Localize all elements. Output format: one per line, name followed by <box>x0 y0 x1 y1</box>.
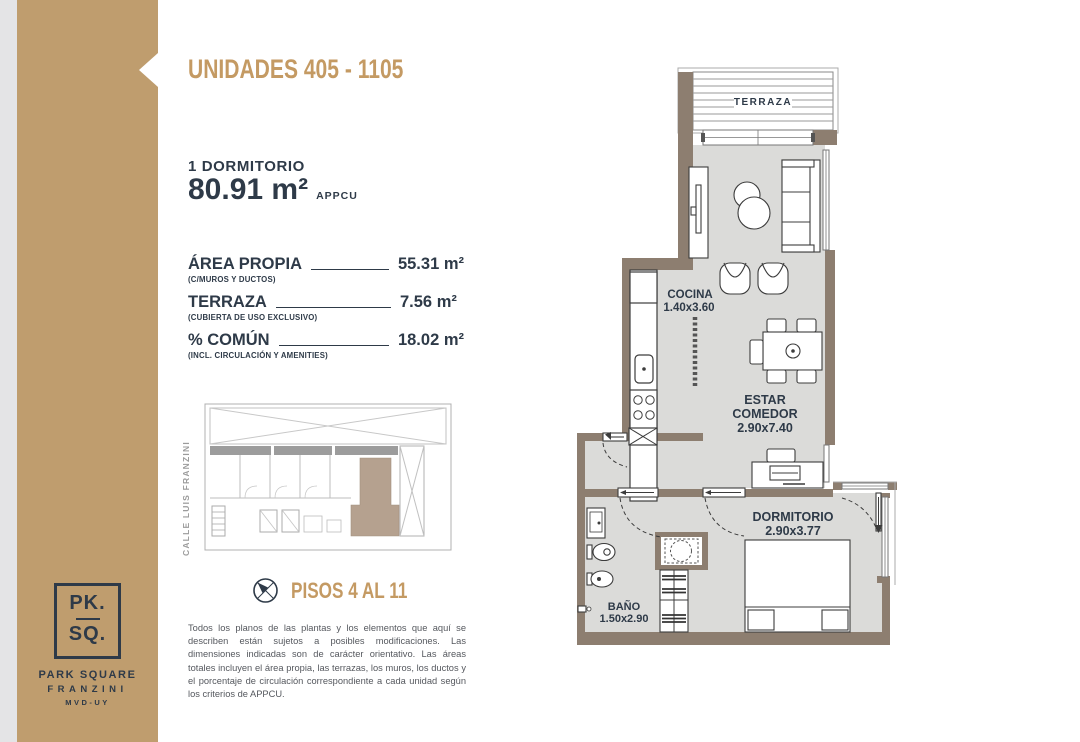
desk-chair <box>767 449 795 462</box>
area-standard: APPCU <box>316 190 358 202</box>
area-value: 7.56 m² <box>400 293 464 312</box>
logo-rule <box>76 618 100 620</box>
room-label-cocina: COCINA <box>667 289 712 301</box>
terrace: TERRAZA <box>678 68 838 133</box>
tv <box>696 185 701 233</box>
room-label-estar-2: COMEDOR <box>732 407 797 421</box>
dining-chair <box>750 340 763 364</box>
room-dims-estar: 2.90x7.40 <box>737 421 793 435</box>
brand-logo: PK. SQ. PARK SQUARE FRANZINI MVD-UY <box>17 583 158 707</box>
total-area: 80.91 m² APPCU <box>188 173 358 207</box>
logo-monogram-bottom: SQ. <box>57 621 118 648</box>
logo-box: PK. SQ. <box>54 583 121 659</box>
toilet-tank <box>587 545 592 559</box>
dining-chair <box>797 319 816 332</box>
compass-icon <box>252 577 279 604</box>
total-area-value: 80.91 m² <box>188 173 308 207</box>
brand-name: PARK SQUARE <box>17 669 158 681</box>
room-dims-cocina: 1.40x3.60 <box>663 302 714 314</box>
sidebar-arrow-notch <box>139 53 158 87</box>
coffee-table <box>738 197 770 229</box>
area-breakdown: ÁREA PROPIA 55.31 m² (C/MUROS Y DUCTOS) … <box>188 255 464 369</box>
nightstand <box>822 610 848 630</box>
disclaimer-text: Todos los planos de las plantas y los el… <box>188 622 466 701</box>
area-note: (INCL. CIRCULACIÓN Y AMENITIES) <box>188 351 464 360</box>
page-edge-strip <box>0 0 17 742</box>
site-plan <box>203 398 455 561</box>
room-dims-bano: 1.50x2.90 <box>600 613 649 625</box>
street-label: CALLE LUIS FRANZINI <box>181 398 191 556</box>
armchair <box>758 263 788 294</box>
bidet <box>591 571 613 587</box>
area-note: (CUBIERTA DE USO EXCLUSIVO) <box>188 313 464 322</box>
dining-chair <box>767 319 786 332</box>
area-note: (C/MUROS Y DUCTOS) <box>188 275 464 284</box>
area-row-terraza: TERRAZA 7.56 m² (CUBIERTA DE USO EXCLUSI… <box>188 293 464 322</box>
area-row-propia: ÁREA PROPIA 55.31 m² (C/MUROS Y DUCTOS) <box>188 255 464 284</box>
area-label: TERRAZA <box>188 293 267 312</box>
area-label: ÁREA PROPIA <box>188 255 302 274</box>
room-label-bano: BAÑO <box>608 600 641 613</box>
dining-chair <box>767 370 786 383</box>
leader-line <box>279 345 389 346</box>
room-label-estar-1: ESTAR <box>744 393 785 407</box>
room-dims-dormitorio: 2.90x3.77 <box>765 524 821 538</box>
dining-chair <box>797 370 816 383</box>
armchair <box>720 263 750 294</box>
area-row-comun: % COMÚN 18.02 m² (INCL. CIRCULACIÓN Y AM… <box>188 331 464 360</box>
floors-label: PISOS 4 AL 11 <box>291 578 440 604</box>
leader-line <box>276 307 391 308</box>
page-title: UNIDADES 405 - 1105 <box>188 54 464 85</box>
brochure-page: PK. SQ. PARK SQUARE FRANZINI MVD-UY UNID… <box>0 0 1080 742</box>
brand-sidebar: PK. SQ. PARK SQUARE FRANZINI MVD-UY <box>17 0 158 742</box>
sofa <box>782 160 820 252</box>
leader-line <box>311 269 389 270</box>
logo-monogram-top: PK. <box>57 590 118 617</box>
room-label-terraza: TERRAZA <box>734 97 792 108</box>
floors-indicator: PISOS 4 AL 11 <box>252 577 440 604</box>
area-label: % COMÚN <box>188 331 270 350</box>
nightstand <box>748 610 774 630</box>
area-value: 18.02 m² <box>398 331 464 350</box>
site-plan-drawing <box>203 398 455 556</box>
floor-plan: TERRAZA <box>558 55 968 655</box>
brand-sub-name: FRANZINI <box>17 684 158 695</box>
area-value: 55.31 m² <box>398 255 464 274</box>
brand-location: MVD-UY <box>17 698 158 707</box>
shutoff-valve <box>578 606 586 612</box>
room-label-dormitorio: DORMITORIO <box>752 510 833 524</box>
